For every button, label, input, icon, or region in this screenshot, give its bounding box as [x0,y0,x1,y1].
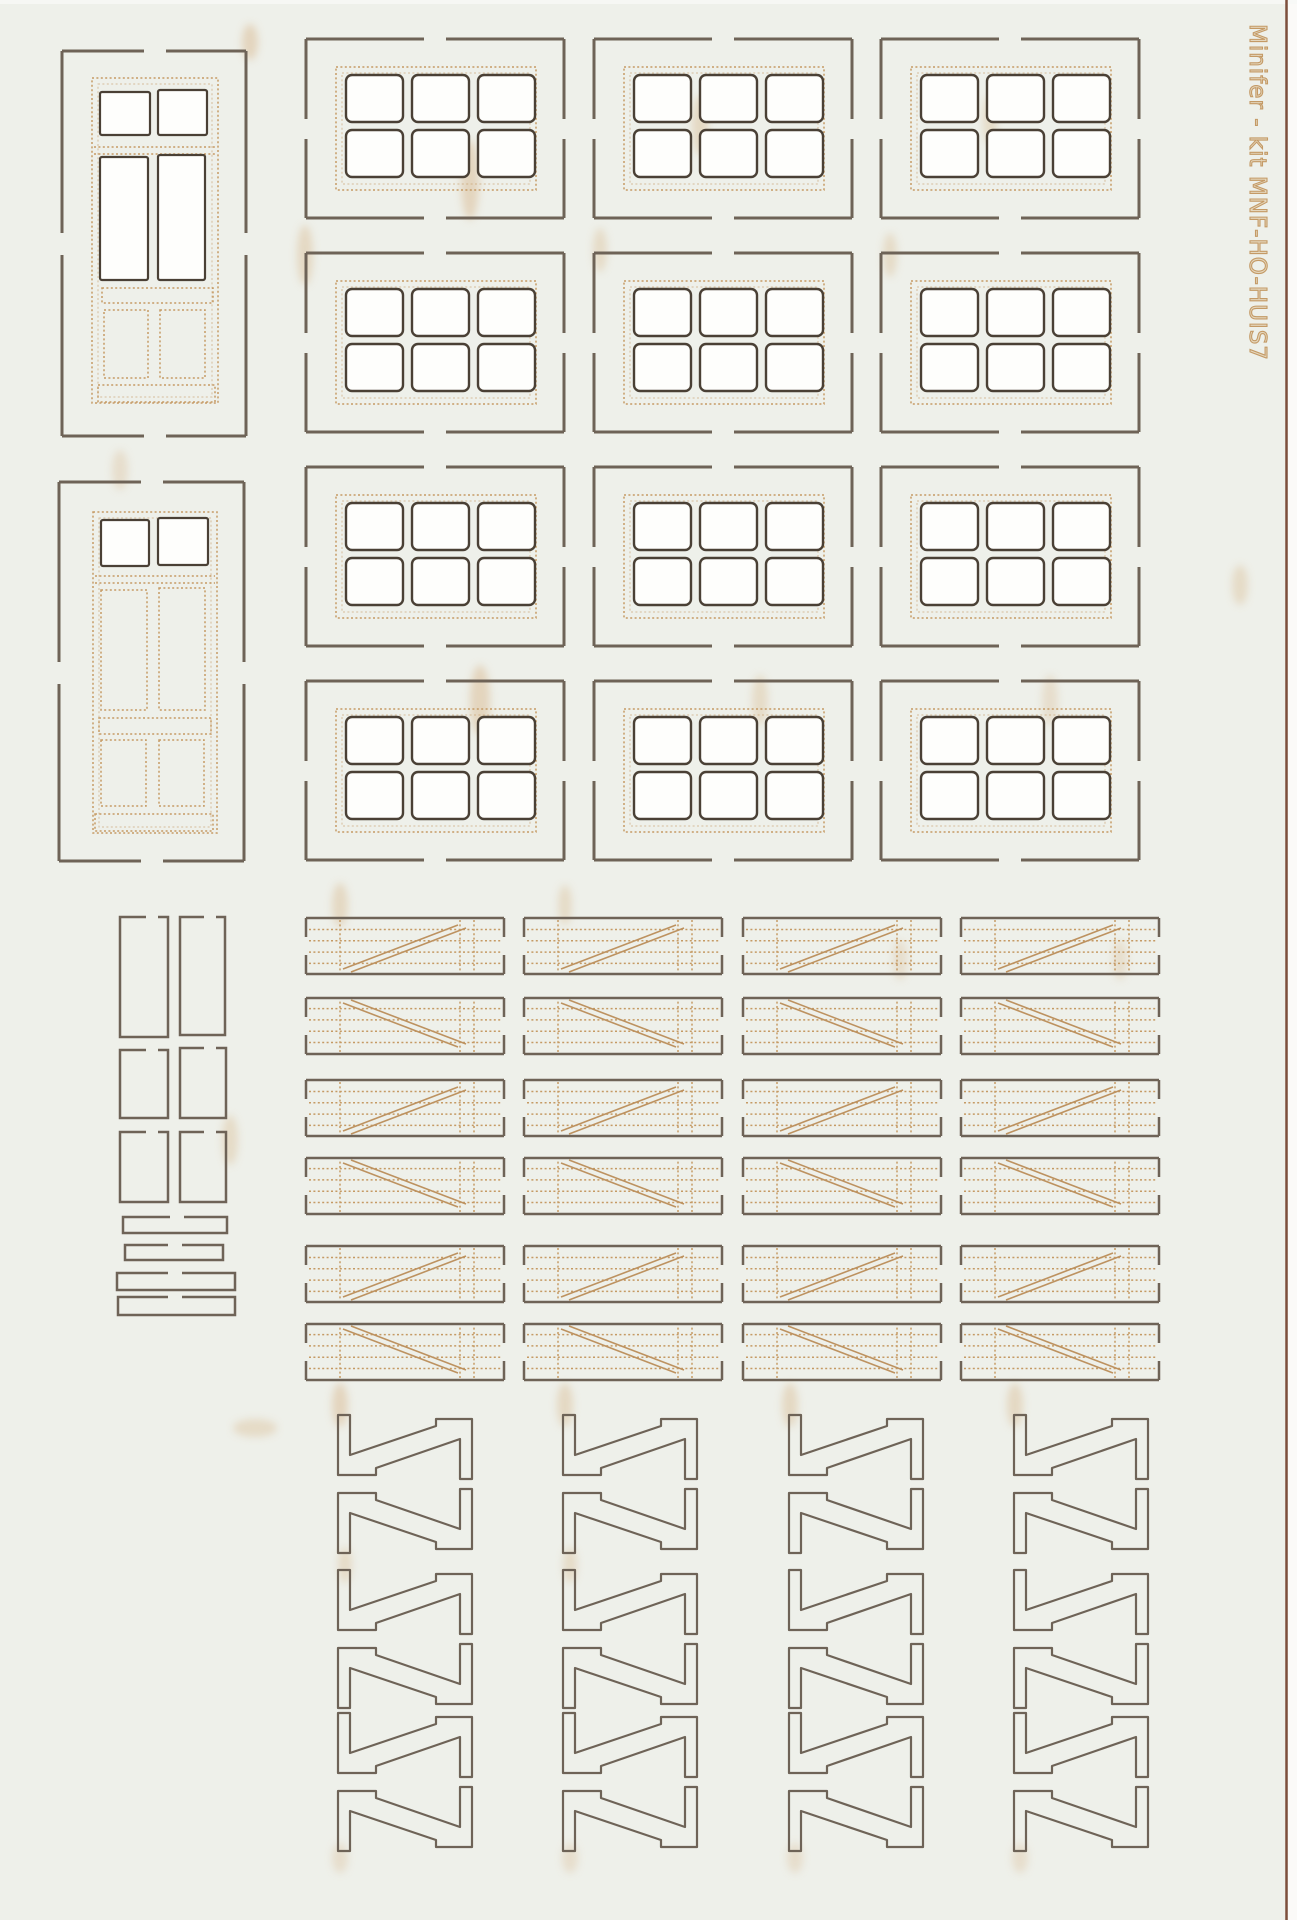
scanner-background [1288,0,1297,1920]
scan-top-edge [0,0,1297,4]
sheet [0,0,1297,1920]
laser-cut-sheet-scan: Minifer - kit MNF-HO-HUIS7 [0,0,1297,1920]
kit-label: Minifer - kit MNF-HO-HUIS7 [1226,24,1270,609]
